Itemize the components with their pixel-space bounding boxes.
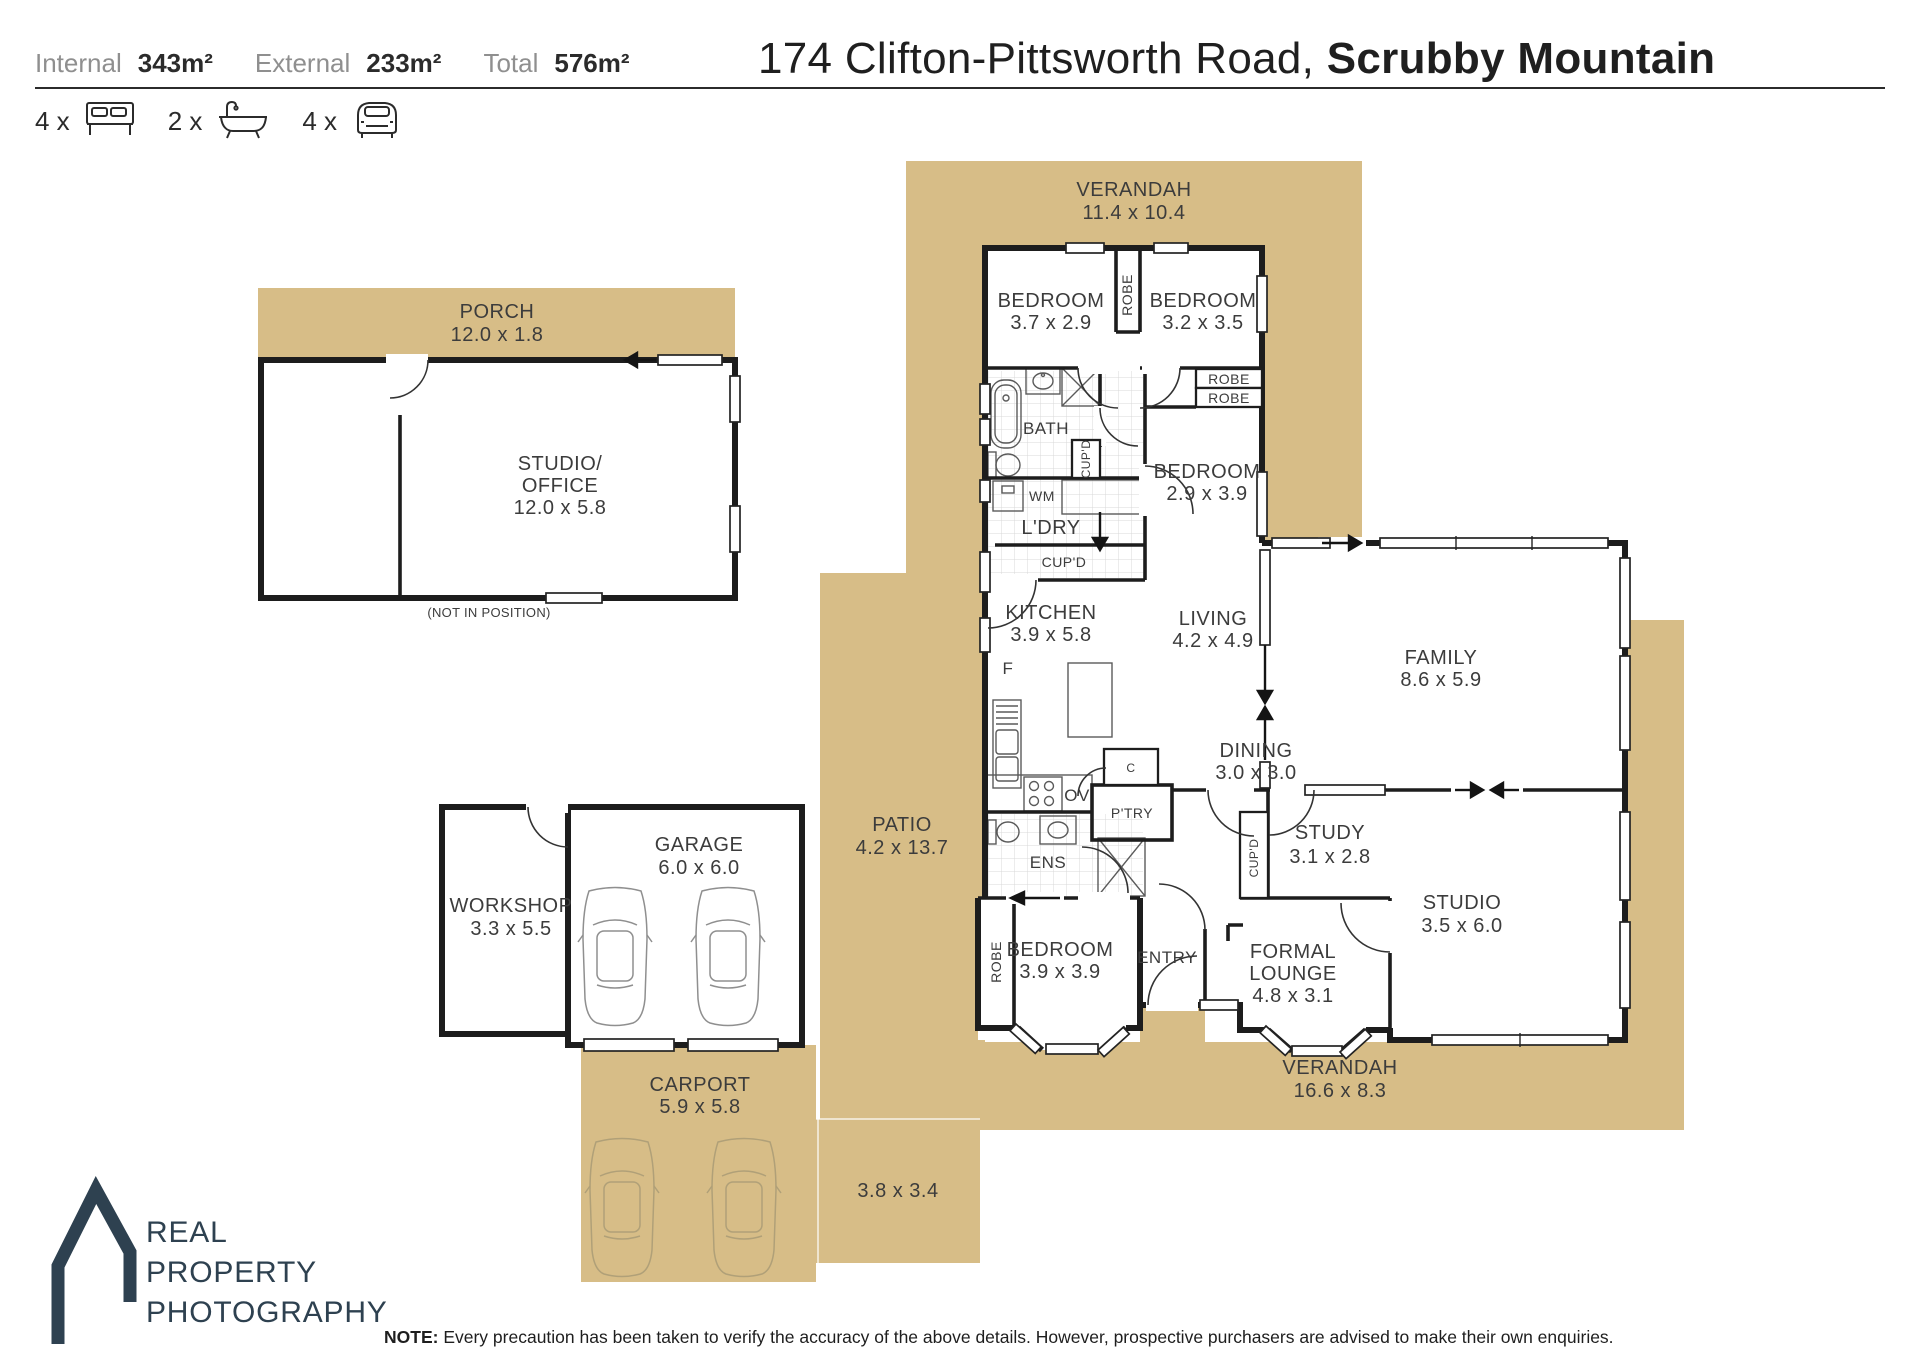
washing-machine-label: WM	[1029, 488, 1055, 504]
study-dims: 3.1 x 2.8	[1289, 846, 1370, 868]
entry-label: ENTRY	[1137, 948, 1197, 967]
closet-label: C	[1126, 761, 1135, 775]
garage-door	[584, 1039, 674, 1051]
dining-label: DINING	[1220, 740, 1293, 762]
family-label: FAMILY	[1405, 647, 1478, 669]
porch-label: PORCH	[460, 301, 535, 323]
floorplan-page: Internal 343m² External 233m² Total 576m…	[0, 0, 1920, 1359]
garage-door	[688, 1039, 778, 1051]
kitchen-label: KITCHEN	[1005, 602, 1096, 624]
studio-dims: 3.5 x 6.0	[1421, 915, 1502, 937]
robe-label: ROBE	[988, 941, 1004, 983]
studio-office-dims: 12.0 x 5.8	[514, 497, 607, 519]
logo-line: PHOTOGRAPHY	[146, 1293, 388, 1333]
studio-label: STUDIO	[1423, 892, 1502, 914]
disclaimer-note: NOTE: Every precaution has been taken to…	[384, 1327, 1614, 1348]
oven-label: OV	[1064, 786, 1090, 805]
pantry-label: P'TRY	[1111, 805, 1153, 821]
logo-line: PROPERTY	[146, 1253, 388, 1293]
verandah-top-label: VERANDAH	[1076, 179, 1191, 201]
rpp-logo-icon	[44, 1176, 144, 1353]
logo-line: REAL	[146, 1213, 388, 1253]
workshop-dims: 3.3 x 5.5	[470, 918, 551, 940]
robe-label: ROBE	[1208, 371, 1250, 387]
patio-dims: 4.2 x 13.7	[856, 837, 949, 859]
ensuite-label: ENS	[1030, 853, 1066, 872]
bedroom3-dims: 2.9 x 3.9	[1166, 483, 1247, 505]
rpp-logo-text: REAL PROPERTY PHOTOGRAPHY	[146, 1213, 388, 1333]
verandah-bottom-label: VERANDAH	[1282, 1057, 1397, 1079]
bedroom2-dims: 3.2 x 3.5	[1162, 312, 1243, 334]
garage-label: GARAGE	[655, 834, 744, 856]
bedroom1-label: BEDROOM	[998, 290, 1105, 312]
family-dims: 8.6 x 5.9	[1400, 669, 1481, 691]
not-in-position-note: (NOT IN POSITION)	[427, 605, 550, 620]
verandah-top-dims: 11.4 x 10.4	[1083, 202, 1186, 224]
living-label: LIVING	[1179, 608, 1248, 630]
cupboard-label: CUP'D	[1079, 440, 1093, 479]
patio-label: PATIO	[872, 814, 932, 836]
fridge-label: F	[1003, 659, 1014, 678]
bedroom4-dims: 3.9 x 3.9	[1019, 961, 1100, 983]
bedroom4-label: BEDROOM	[1007, 939, 1114, 961]
porch-dims: 12.0 x 1.8	[451, 324, 544, 346]
cupboard-label: CUP'D	[1247, 839, 1261, 878]
studio-office-label1: STUDIO/	[518, 453, 603, 475]
laundry-label: L'DRY	[1021, 517, 1080, 539]
carport-dims: 5.9 x 5.8	[659, 1096, 740, 1118]
note-label: NOTE:	[384, 1327, 438, 1347]
living-dims: 4.2 x 4.9	[1172, 630, 1253, 652]
garage-dims: 6.0 x 6.0	[658, 857, 739, 879]
note-text: Every precaution has been taken to verif…	[443, 1327, 1613, 1347]
carport-label: CARPORT	[650, 1074, 751, 1096]
bedroom1-dims: 3.7 x 2.9	[1010, 312, 1091, 334]
robe-label: ROBE	[1208, 390, 1250, 406]
cupboard-label: CUP'D	[1042, 554, 1087, 570]
kitchen-dims: 3.9 x 5.8	[1010, 624, 1091, 646]
floorplan-drawing: VERANDAH 11.4 x 10.4 PORCH 12.0 x 1.8 ST…	[0, 0, 1920, 1359]
verandah-bottom-dims: 16.6 x 8.3	[1294, 1080, 1387, 1102]
robe-label: ROBE	[1119, 274, 1135, 316]
bedroom2-label: BEDROOM	[1150, 290, 1257, 312]
formal-lounge-label2: LOUNGE	[1249, 963, 1336, 985]
formal-lounge-dims: 4.8 x 3.1	[1252, 985, 1333, 1007]
bedroom3-label: BEDROOM	[1154, 461, 1261, 483]
workshop-label: WORKSHOP	[450, 895, 573, 917]
patio-ext-dims: 3.8 x 3.4	[857, 1180, 938, 1202]
bath-label: BATH	[1023, 419, 1069, 438]
study-label: STUDY	[1295, 822, 1365, 844]
studio-office-label2: OFFICE	[522, 475, 598, 497]
dining-dims: 3.0 x 3.0	[1215, 762, 1296, 784]
formal-lounge-label1: FORMAL	[1250, 941, 1336, 963]
